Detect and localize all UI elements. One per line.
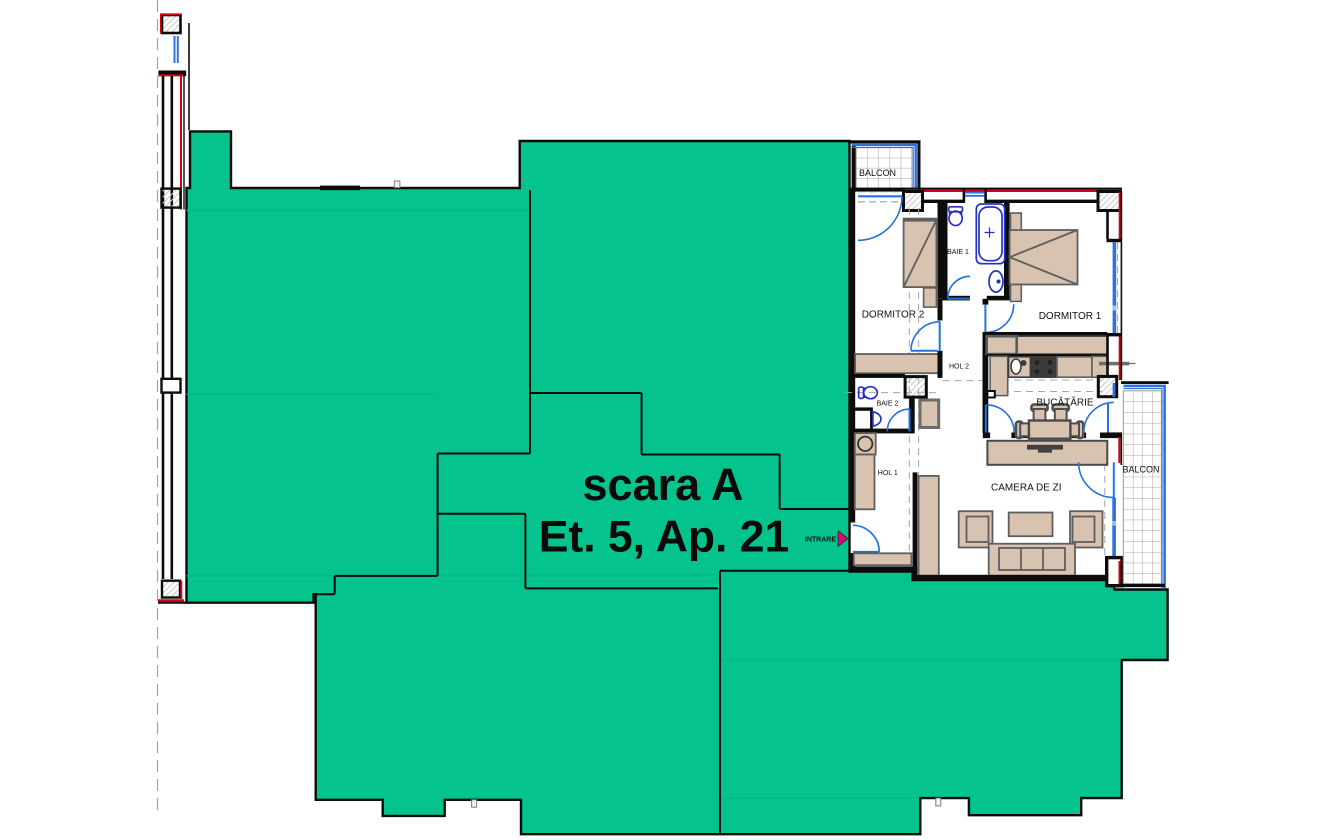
- svg-text:BAIE 2: BAIE 2: [877, 401, 899, 408]
- svg-text:CAMERA DE ZI: CAMERA DE ZI: [991, 483, 1062, 494]
- svg-text:BAIE 1: BAIE 1: [947, 249, 969, 256]
- svg-text:Et. 5, Ap. 21: Et. 5, Ap. 21: [539, 513, 790, 562]
- svg-text:DORMITOR 1: DORMITOR 1: [1039, 311, 1102, 322]
- svg-text:HOL 2: HOL 2: [949, 364, 969, 371]
- svg-text:HOL 1: HOL 1: [878, 470, 898, 477]
- svg-text:BUCĂTĂRIE: BUCĂTĂRIE: [1036, 396, 1094, 409]
- svg-text:scara A: scara A: [583, 459, 744, 510]
- svg-text:DORMITOR 2: DORMITOR 2: [862, 310, 925, 321]
- svg-text:INTRARE: INTRARE: [805, 537, 836, 544]
- svg-text:BALCON: BALCON: [859, 168, 896, 178]
- svg-text:BALCON: BALCON: [1122, 465, 1159, 475]
